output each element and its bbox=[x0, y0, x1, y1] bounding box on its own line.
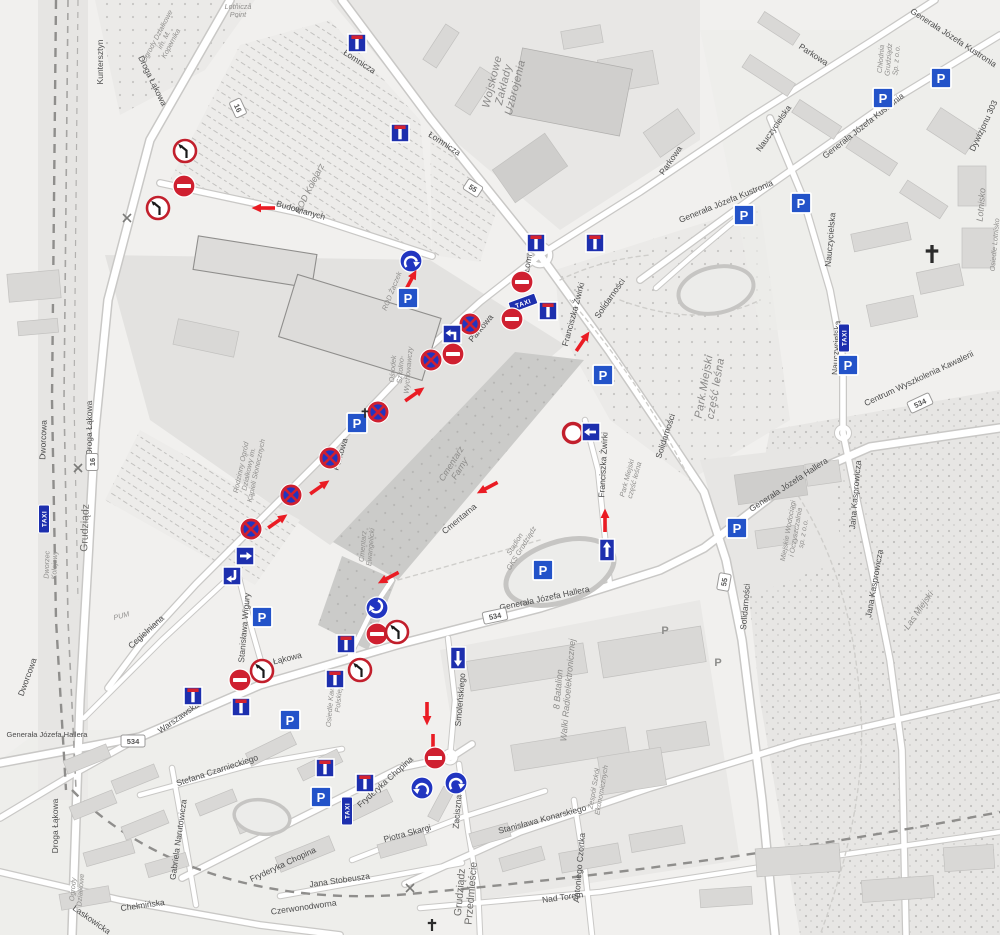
parking-sign bbox=[931, 68, 951, 88]
turn-sign bbox=[445, 772, 467, 794]
parking-sign bbox=[734, 205, 754, 225]
no-stopping-sign bbox=[240, 518, 262, 540]
route-shield: 55 bbox=[717, 573, 732, 592]
no-stopping-sign bbox=[459, 313, 481, 335]
area-label: OgrodyDziałkowe bbox=[67, 873, 87, 907]
no-entry-sign bbox=[511, 271, 533, 293]
taxi-badge: TAXI bbox=[839, 324, 850, 352]
area-label: DworzecKolejowy bbox=[42, 550, 60, 580]
no-entry-sign bbox=[501, 308, 523, 330]
arrow-left-sq bbox=[582, 423, 600, 441]
no-stopping-sign bbox=[319, 447, 341, 469]
street-label: Dworcowa bbox=[37, 420, 48, 460]
dead-end-sign bbox=[348, 34, 366, 52]
taxi-badge: TAXI bbox=[342, 797, 353, 825]
gray-p bbox=[714, 657, 721, 669]
parking-sign bbox=[311, 787, 331, 807]
street-label: Droga Łąkowa bbox=[84, 400, 94, 455]
dead-end-sign bbox=[326, 670, 344, 688]
one-way-sign bbox=[600, 539, 615, 561]
area-label: ChłodniaGrudziądzSp. z o.o. bbox=[875, 42, 902, 77]
svg-text:16: 16 bbox=[88, 458, 97, 466]
no-entry-sign bbox=[173, 175, 195, 197]
turn-sign bbox=[411, 777, 433, 799]
dead-end-sign bbox=[232, 698, 250, 716]
street-label: Generała Józefa Hallera bbox=[7, 730, 89, 739]
no-vehicles-sign bbox=[564, 424, 583, 443]
no-entry-sign bbox=[424, 747, 446, 769]
taxi-badge: TAXI bbox=[39, 505, 50, 533]
parking-sign bbox=[727, 518, 747, 538]
station-label: Grudziądz bbox=[78, 504, 92, 552]
street-label: Kuntersztyn bbox=[95, 39, 105, 84]
svg-text:TAXI: TAXI bbox=[345, 803, 352, 819]
dead-end-sign bbox=[586, 234, 604, 252]
street-label: Droga Łąkowa bbox=[50, 798, 60, 853]
svg-text:55: 55 bbox=[719, 577, 729, 587]
parking-sign bbox=[838, 355, 858, 375]
no-turn-sign bbox=[147, 197, 169, 219]
area-label: CmentarzEwangelicki bbox=[356, 527, 376, 567]
parking-sign bbox=[398, 288, 418, 308]
no-turn-sign bbox=[251, 660, 273, 682]
dead-end-sign bbox=[539, 302, 557, 320]
svg-text:TAXI: TAXI bbox=[842, 330, 849, 346]
parking-sign bbox=[873, 88, 893, 108]
no-turn-sign bbox=[174, 140, 196, 162]
parking-sign bbox=[280, 710, 300, 730]
no-entry-sign bbox=[442, 343, 464, 365]
map-canvas: P bbox=[0, 0, 1000, 935]
arrow-right-sq bbox=[236, 547, 254, 565]
no-stopping-sign bbox=[280, 484, 302, 506]
parking-sign bbox=[791, 193, 811, 213]
route-shield: 16 bbox=[86, 454, 98, 471]
no-stopping-sign bbox=[420, 349, 442, 371]
turn-sign bbox=[400, 250, 422, 272]
parking-sign bbox=[593, 365, 613, 385]
dead-end-sign bbox=[316, 759, 334, 777]
no-turn-sign bbox=[386, 621, 408, 643]
svg-text:534: 534 bbox=[127, 737, 140, 746]
arrow-bent-left bbox=[443, 325, 461, 343]
arrow-down-rect bbox=[451, 647, 466, 669]
gray-p bbox=[661, 625, 668, 637]
dead-end-sign bbox=[337, 635, 355, 653]
dead-end-sign bbox=[527, 234, 545, 252]
dead-end-sign bbox=[356, 774, 374, 792]
parking-sign bbox=[347, 413, 367, 433]
parking-sign bbox=[533, 560, 553, 580]
no-entry-sign bbox=[229, 669, 251, 691]
traffic-map: P bbox=[0, 0, 1000, 935]
dead-end-sign bbox=[391, 124, 409, 142]
no-turn-sign bbox=[349, 659, 371, 681]
dead-end-sign bbox=[184, 687, 202, 705]
arrow-bent-down bbox=[223, 567, 241, 585]
parking-sign bbox=[252, 607, 272, 627]
svg-text:TAXI: TAXI bbox=[42, 511, 49, 527]
route-shield: 534 bbox=[121, 735, 145, 747]
no-stopping-sign bbox=[367, 401, 389, 423]
no-entry-sign bbox=[366, 623, 388, 645]
